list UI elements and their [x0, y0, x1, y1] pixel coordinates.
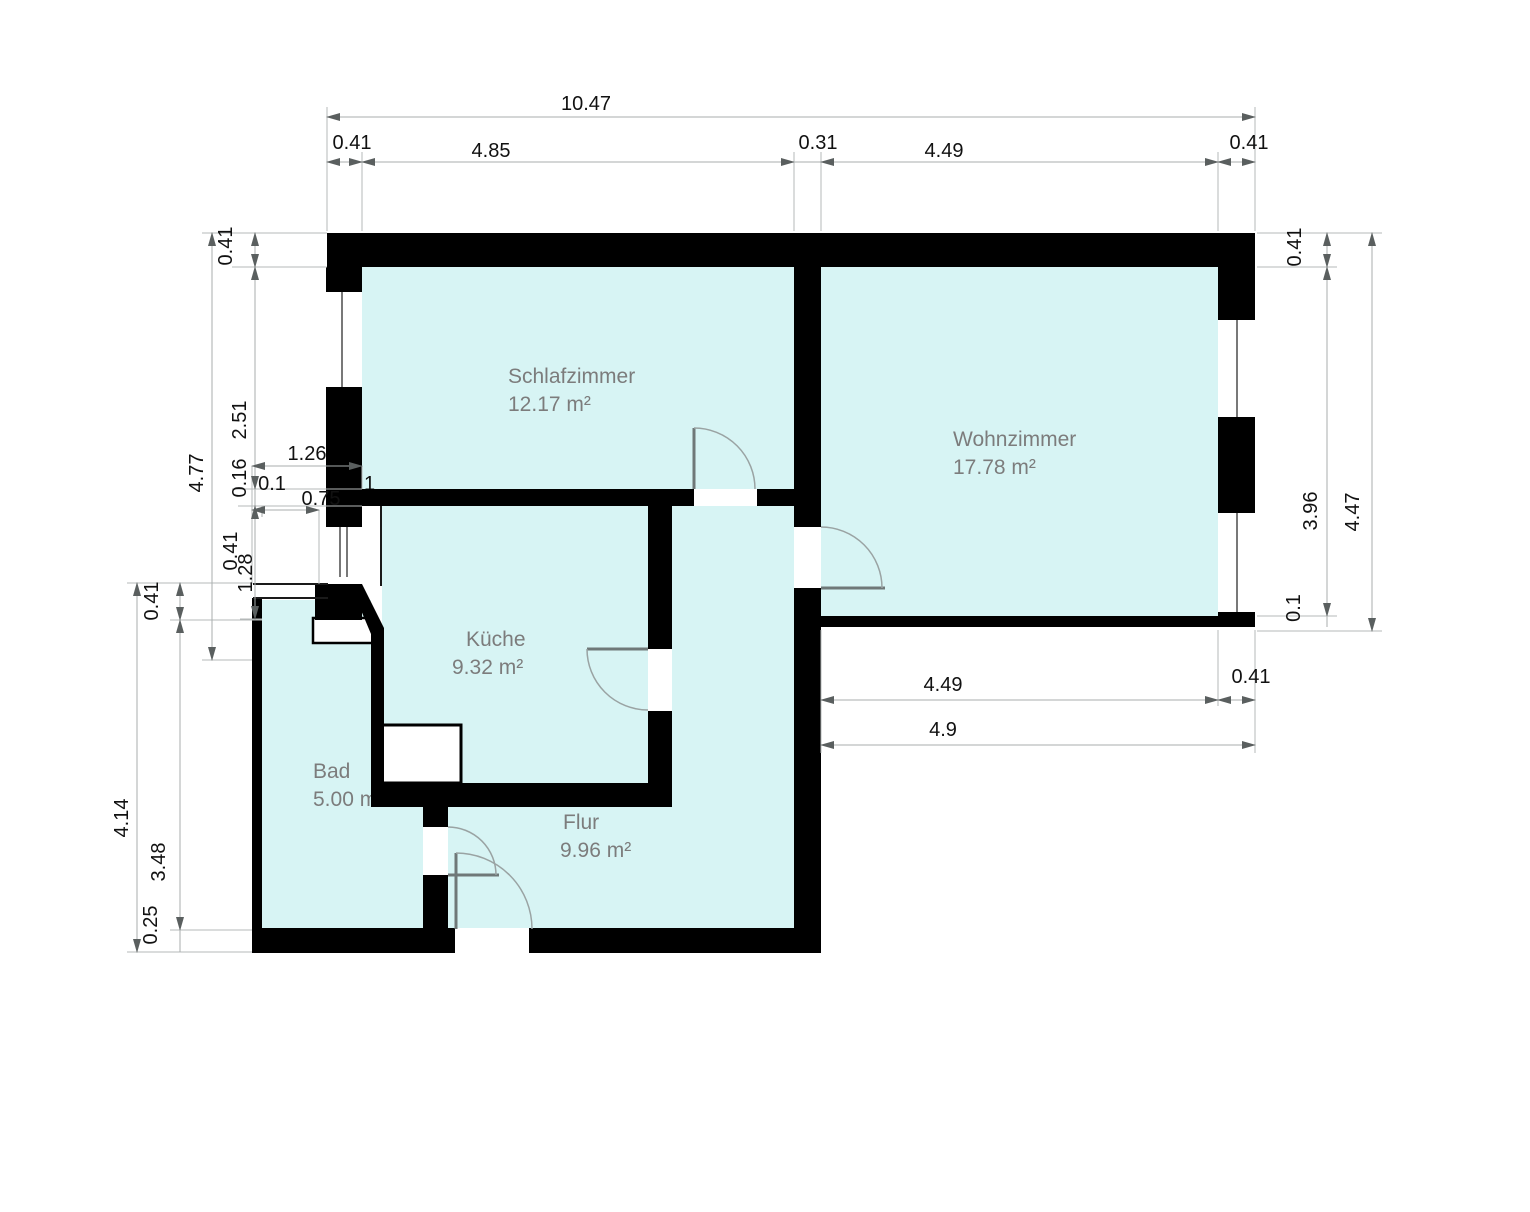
wall-right-pier1 [1218, 267, 1255, 320]
dim-text-left-small: 0.1 [258, 473, 286, 495]
wall-top [327, 233, 1255, 267]
wall-divider-upper [794, 267, 821, 527]
label-wohnzimmer-area: 17.78 m² [953, 456, 1036, 479]
room-fills [262, 267, 1218, 928]
label-schlafzimmer-area: 12.17 m² [508, 393, 591, 416]
dim-text-left-total: 4.77 [186, 454, 208, 493]
dim-text-left-wall-top: 0.41 [215, 227, 237, 266]
wall-schlaf-bottom-left [362, 489, 694, 506]
label-schlafzimmer-name: Schlafzimmer [508, 365, 635, 388]
dim-text-lowerleft-wall: 0.41 [141, 582, 163, 621]
floor-plan-drawing: Schlafzimmer 12.17 m² Wohnzimmer 17.78 m… [0, 0, 1530, 1212]
dim-text-top-1: 0.41 [333, 132, 372, 154]
dim-text-right-total: 4.47 [1342, 493, 1364, 532]
label-kueche-area: 9.32 m² [452, 656, 523, 679]
label-kueche-name: Küche [466, 628, 526, 651]
dim-text-bottom-wall: 0.41 [1232, 666, 1271, 688]
dim-text-left-wall-mid: 0.16 [229, 459, 251, 498]
wall-kueche-bottom [371, 783, 672, 807]
wall-right-pier2 [1218, 417, 1255, 513]
wall-bottom-left [252, 928, 455, 953]
wall-kueche-right-upper [648, 506, 672, 649]
dim-text-right-wall-top: 0.41 [1284, 228, 1306, 267]
dim-text-top-5: 0.41 [1230, 132, 1269, 154]
wall-divider-lower [794, 588, 821, 928]
wall-schlaf-bottom-right [757, 489, 794, 506]
wall-kueche-right-lower [648, 711, 672, 807]
dim-text-top-3: 0.31 [799, 132, 838, 154]
floor-plan-page: Schlafzimmer 12.17 m² Wohnzimmer 17.78 m… [0, 0, 1530, 1212]
dim-text-right-thin: 0.1 [1283, 594, 1305, 622]
dim-text-lowerleft-bad: 3.48 [148, 843, 170, 882]
dim-text-bottom-2: 4.9 [929, 719, 957, 741]
label-wohnzimmer-name: Wohnzimmer [953, 428, 1076, 451]
dim-text-top-4: 4.49 [925, 140, 964, 162]
wall-wohn-bottom-stub [1218, 612, 1255, 627]
dim-text-left-lobby: 1.28 [235, 554, 257, 593]
dim-text-bottom-1: 4.49 [924, 674, 963, 696]
dim-text-lowerleft-bottom: 0.25 [140, 906, 162, 945]
dim-text-total-width: 10.47 [561, 93, 611, 115]
wall-wohn-bottom-thin [821, 616, 1218, 627]
wall-kueche-left [371, 628, 384, 783]
wall-bad-flur-upper [423, 807, 448, 827]
label-flur-area: 9.96 m² [560, 839, 631, 862]
wall-bad-left [252, 598, 262, 930]
label-bad-name: Bad [313, 760, 350, 783]
bad-niche [313, 618, 373, 643]
kueche-fixture-block [381, 725, 461, 783]
label-flur-name: Flur [563, 811, 599, 834]
dim-text-lowerleft-total: 4.14 [111, 799, 133, 838]
dim-text-offset-b: 0.75 [302, 488, 341, 510]
wall-bottom-right [529, 928, 821, 953]
dim-text-right-window: 3.96 [1300, 492, 1322, 531]
dim-text-top-2: 4.85 [472, 140, 511, 162]
dim-text-left-schlaf: 2.51 [229, 401, 251, 440]
dim-text-offset-a: 1.26 [288, 443, 327, 465]
wall-left-stub [326, 267, 362, 292]
wall-bad-flur-lower [423, 875, 448, 928]
